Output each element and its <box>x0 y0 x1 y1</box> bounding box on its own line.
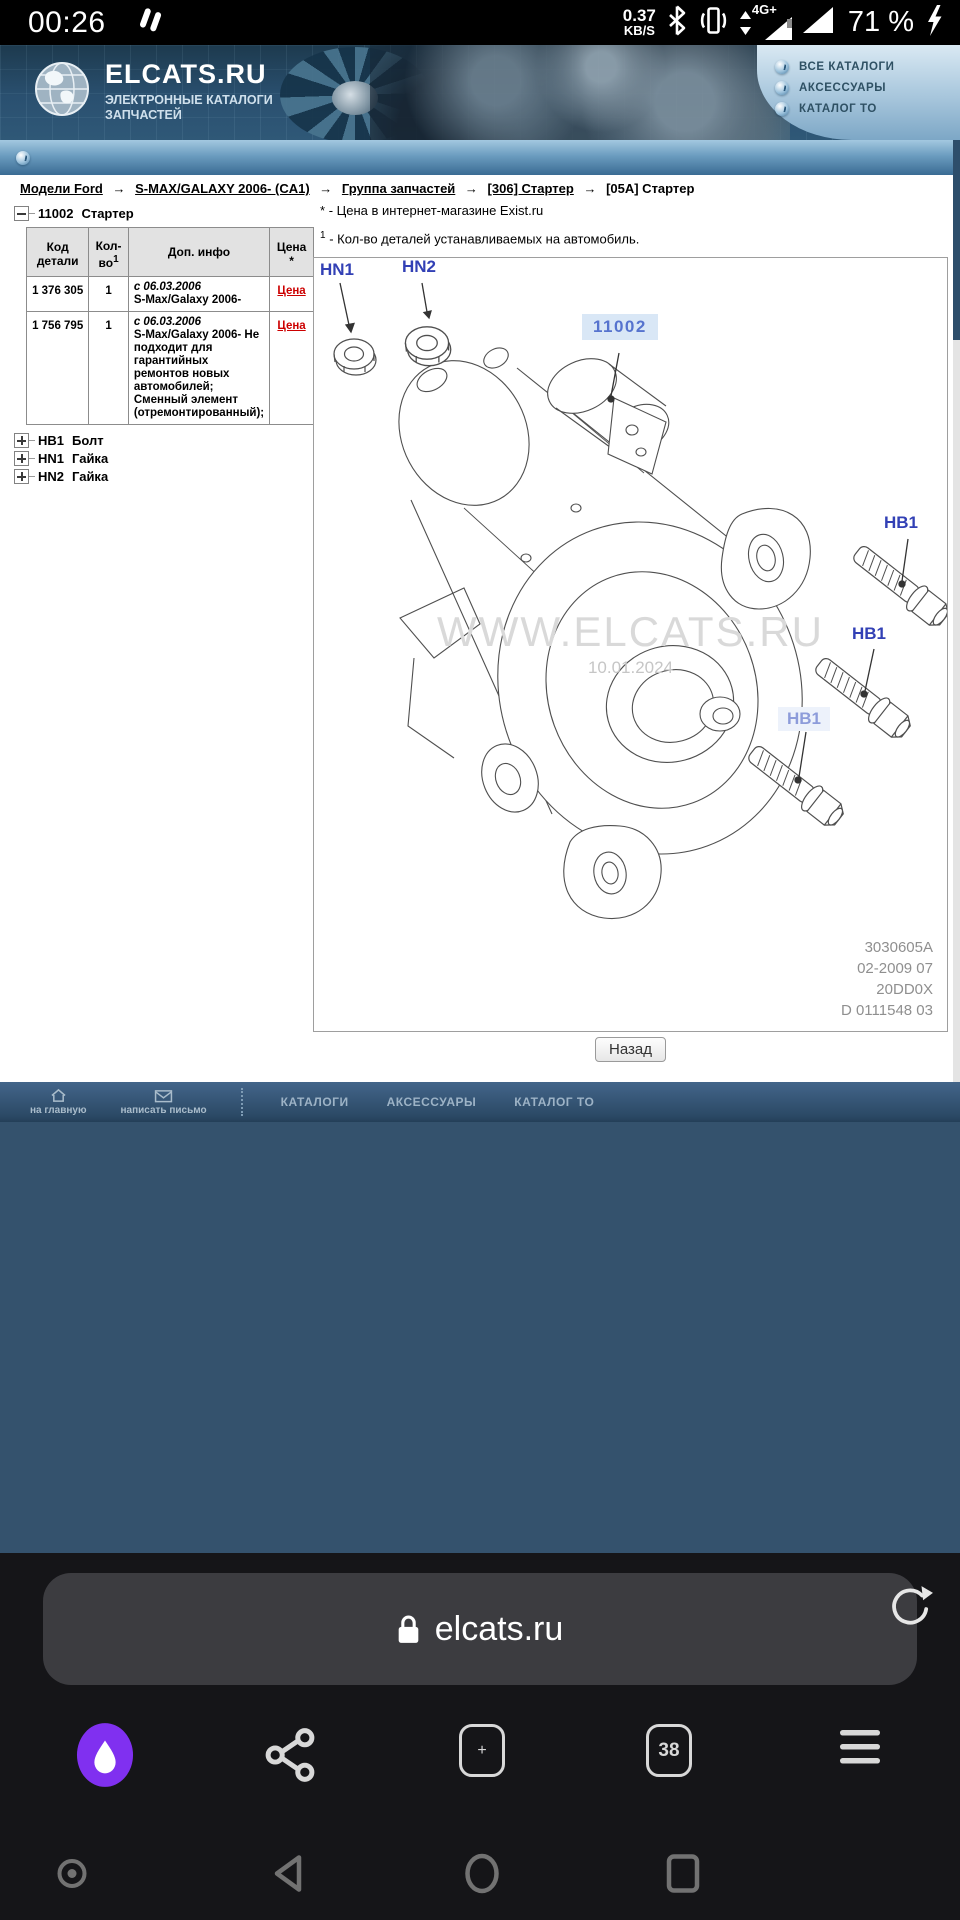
logo-title: ELCATS.RU <box>105 59 273 90</box>
signal-triangle-icon <box>803 7 833 38</box>
lock-icon <box>397 1614 420 1645</box>
url-text: elcats.ru <box>435 1610 564 1649</box>
part-info: с 06.03.2006 S-Max/Galaxy 2006- <box>128 277 269 312</box>
table-row: 1 376 305 1 с 06.03.2006 S-Max/Galaxy 20… <box>27 277 314 312</box>
menu-item-all-catalogs[interactable]: ВСЕ КАТАЛОГИ <box>775 60 960 74</box>
tree-root-11002[interactable]: 11002 Стартер <box>14 206 314 221</box>
reload-icon[interactable] <box>884 1585 934 1636</box>
charging-bolt-icon <box>925 5 944 41</box>
nut-hn1-drawing <box>334 339 376 375</box>
tree-item-hb1[interactable]: НВ1 Болт <box>14 433 314 448</box>
part-qty: 1 <box>89 312 129 425</box>
table-header-row: Код детали Кол-во1 Доп. инфо Цена* <box>27 228 314 277</box>
col-qty: Кол-во1 <box>89 228 129 277</box>
drawing-numbers: 3030605A 02-2009 07 20DD0X D 0111548 03 <box>841 937 933 1021</box>
page-background <box>0 1122 960 1553</box>
menu-item-catalog-to[interactable]: КАТАЛОГ ТО <box>775 102 960 116</box>
url-bar[interactable]: elcats.ru <box>43 1573 917 1685</box>
new-tab-icon[interactable]: + <box>459 1724 505 1777</box>
diagram-label-hb1[interactable]: НВ1 <box>852 624 886 644</box>
footer-link-catalog-to[interactable]: КАТАЛОГ ТО <box>514 1095 594 1109</box>
parts-diagram: WWW.ELCATS.RU 10.01.2024 <box>313 257 948 1032</box>
breadcrumb-link-group[interactable]: Группа запчастей <box>342 181 455 196</box>
tree-item-hn2[interactable]: HN2 Гайка <box>14 469 314 484</box>
breadcrumb-separator: → <box>319 181 332 196</box>
part-code: 1 756 795 <box>27 312 89 425</box>
collapse-icon[interactable] <box>14 206 29 221</box>
recents-icon[interactable] <box>666 1853 700 1898</box>
part-info: с 06.03.2006 S-Max/Galaxy 2006- Не подхо… <box>128 312 269 425</box>
col-info: Доп. инфо <box>128 228 269 277</box>
tree-connector <box>29 458 35 459</box>
tab-count: 38 <box>658 1740 679 1762</box>
android-nav-bar <box>0 1831 960 1920</box>
bluetooth-icon <box>667 5 687 41</box>
tree-connector <box>29 476 35 477</box>
watermark-date: 10.01.2024 <box>314 658 947 678</box>
site-header: ELCATS.RU ЭЛЕКТРОННЫЕ КАТАЛОГИ ЗАПЧАСТЕЙ… <box>0 45 960 140</box>
tree-item-hn1[interactable]: HN1 Гайка <box>14 451 314 466</box>
breadcrumb-separator: → <box>465 181 478 196</box>
diagram-label-hn1[interactable]: HN1 <box>320 260 354 280</box>
bullet-sphere-icon <box>775 102 789 116</box>
qty-footnote: 1 - Кол-во деталей устанавливаемых на ав… <box>320 228 800 247</box>
screen: 00:26 0.37 KB/S 4G+ <box>0 0 960 1920</box>
logo-subtitle-2: ЗАПЧАСТЕЙ <box>105 108 273 123</box>
logo-text: ELCATS.RU ЭЛЕКТРОННЫЕ КАТАЛОГИ ЗАПЧАСТЕЙ <box>105 59 273 123</box>
envelope-icon <box>154 1089 173 1103</box>
bullet-sphere-icon <box>775 81 789 95</box>
expand-icon[interactable] <box>14 469 29 484</box>
menu-icon[interactable] <box>837 1728 883 1771</box>
engine-photo <box>250 45 770 140</box>
status-icons: 0.37 KB/S 4G+ 7 <box>623 3 944 43</box>
tree-connector <box>29 440 35 441</box>
bullet-sphere-icon <box>775 60 789 74</box>
diagram-label-hn2[interactable]: HN2 <box>402 257 436 277</box>
expand-icon[interactable] <box>14 433 29 448</box>
menu-item-accessories[interactable]: АКСЕССУАРЫ <box>775 81 960 95</box>
diagram-label-11002[interactable]: 11002 <box>582 314 658 340</box>
bullet-sphere-icon <box>16 151 30 165</box>
breadcrumb-link-model[interactable]: S-MAX/GALAXY 2006- (CA1) <box>135 181 310 196</box>
tabs-icon[interactable]: 38 <box>646 1724 692 1777</box>
network-speed: 0.37 KB/S <box>623 8 656 38</box>
engine-parts-image <box>370 45 790 140</box>
breadcrumb-current: [05A] Стартер <box>606 181 694 196</box>
footer-mail-link[interactable]: написать письмо <box>121 1089 207 1116</box>
breadcrumb-link-models[interactable]: Модели Ford <box>20 181 103 196</box>
back-icon[interactable] <box>269 1853 305 1898</box>
price-link[interactable]: Цена <box>277 285 305 297</box>
site-footer: на главную написать письмо КАТАЛОГИ АКСЕ… <box>0 1082 960 1122</box>
alice-icon[interactable] <box>76 1721 134 1794</box>
back-button[interactable]: Назад <box>595 1037 666 1062</box>
breadcrumb-separator: → <box>112 181 125 196</box>
price-link[interactable]: Цена <box>277 320 305 332</box>
header-wave-band <box>0 140 960 175</box>
footer-link-accessories[interactable]: АКСЕССУАРЫ <box>387 1095 477 1109</box>
col-code: Код детали <box>27 228 89 277</box>
breadcrumb-link-306[interactable]: [306] Стартер <box>488 181 574 196</box>
parts-table: Код детали Кол-во1 Доп. инфо Цена* 1 376… <box>26 227 314 425</box>
browser-toolbar: + 38 <box>0 1711 960 1811</box>
footer-divider <box>241 1088 243 1116</box>
signal-4g-icon: 4G+ <box>740 3 792 43</box>
logo-subtitle-1: ЭЛЕКТРОННЫЕ КАТАЛОГИ <box>105 93 273 108</box>
part-code: 1 376 305 <box>27 277 89 312</box>
part-qty: 1 <box>89 277 129 312</box>
home-icon[interactable] <box>463 1852 501 1899</box>
price-footnote: * - Цена в интернет-магазине Exist.ru <box>320 203 800 219</box>
browser-chrome: elcats.ru + 38 <box>0 1553 960 1920</box>
footer-home-link[interactable]: на главную <box>30 1088 87 1116</box>
breadcrumb: Модели Ford → S-MAX/GALAXY 2006- (CA1) →… <box>20 181 694 196</box>
share-icon[interactable] <box>262 1727 318 1788</box>
speed-indicator-icon <box>138 7 164 38</box>
table-row: 1 756 795 1 с 06.03.2006 S-Max/Galaxy 20… <box>27 312 314 425</box>
diagram-label-hb1[interactable]: НВ1 <box>884 513 918 533</box>
col-price: Цена* <box>270 228 314 277</box>
clock: 00:26 <box>28 6 106 40</box>
page-content: Модели Ford → S-MAX/GALAXY 2006- (CA1) →… <box>0 175 960 1082</box>
diagram-label-hb1[interactable]: НВ1 <box>778 707 830 731</box>
home-icon <box>50 1088 67 1103</box>
battery-percent: 71 % <box>848 6 914 39</box>
globe-icon <box>33 59 91 124</box>
site-logo[interactable]: ELCATS.RU ЭЛЕКТРОННЫЕ КАТАЛОГИ ЗАПЧАСТЕЙ <box>33 59 273 124</box>
vibrate-icon <box>698 6 729 40</box>
breadcrumb-separator: → <box>583 181 596 196</box>
screen-record-icon[interactable] <box>55 1856 89 1895</box>
price-cell: Цена <box>270 277 314 312</box>
scrollbar-thumb[interactable] <box>953 140 960 340</box>
footer-link-catalogs[interactable]: КАТАЛОГИ <box>281 1095 349 1109</box>
price-cell: Цена <box>270 312 314 425</box>
nut-hn2-drawing <box>405 327 450 366</box>
footnotes: * - Цена в интернет-магазине Exist.ru 1 … <box>320 203 800 256</box>
tree-connector <box>29 213 35 214</box>
status-bar: 00:26 0.37 KB/S 4G+ <box>0 0 960 45</box>
expand-icon[interactable] <box>14 451 29 466</box>
back-row: Назад <box>313 1037 948 1062</box>
parts-tree: 11002 Стартер Код детали Кол-во1 Доп. ин… <box>14 203 314 487</box>
